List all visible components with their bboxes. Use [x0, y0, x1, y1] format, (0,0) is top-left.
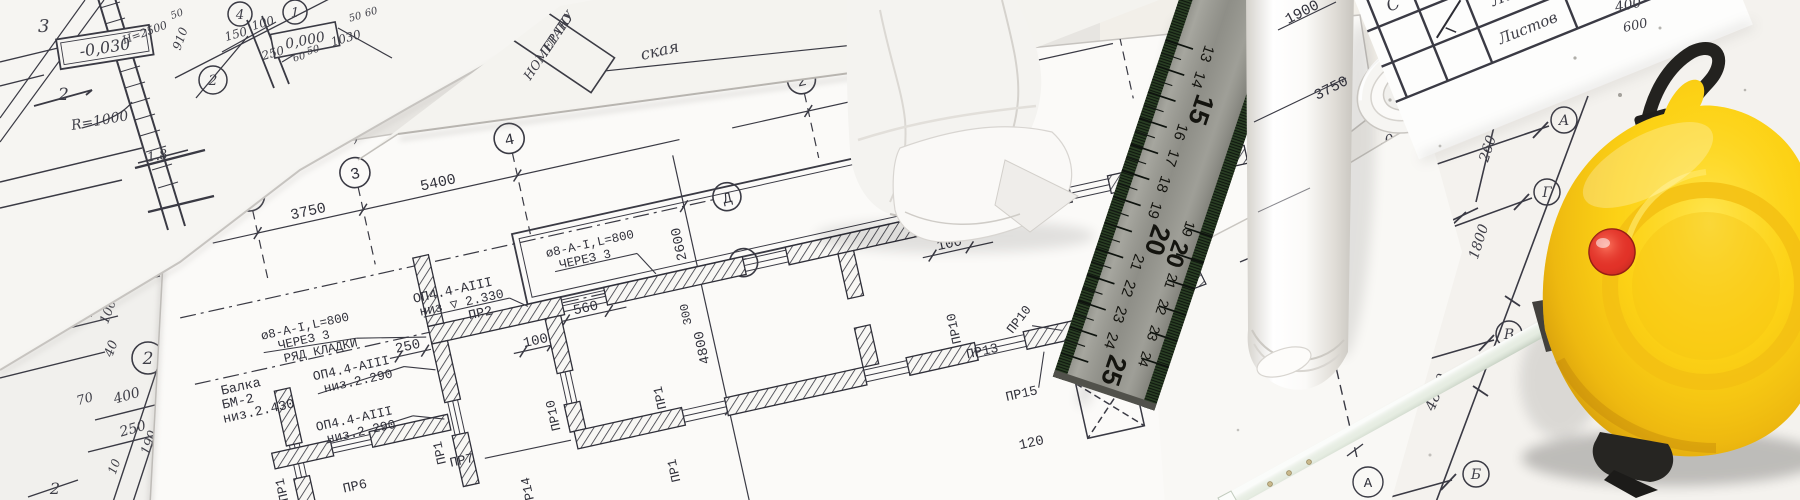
- arrow-label: 2: [57, 85, 69, 105]
- tape-lock-button: [1589, 229, 1635, 275]
- axis-bubble-label: 4: [235, 8, 244, 23]
- photo-blueprints-desk: 2 70 100 40 400 70 250 190 10 2 2 3 4 2 …: [0, 0, 1800, 500]
- axis-bubble-label: Г: [1541, 185, 1552, 201]
- arrow-label: 2: [49, 479, 60, 498]
- axis-bubble-label: 1: [291, 6, 299, 21]
- axis-bubble-label: 2: [208, 73, 218, 89]
- axis-bubble-label: 2: [142, 349, 154, 369]
- axis-bubble-label: Б: [1470, 467, 1481, 483]
- axis-bubble-label: А: [1364, 476, 1373, 492]
- note-label: 3: [38, 16, 49, 37]
- axis-bubble-label: А: [1558, 113, 1570, 129]
